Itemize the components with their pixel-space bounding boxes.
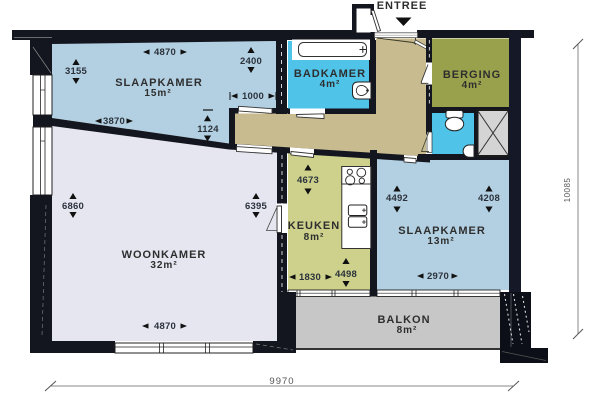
svg-text:4870: 4870 (154, 321, 176, 332)
svg-text:8m²: 8m² (397, 325, 418, 336)
svg-text:4208: 4208 (478, 193, 500, 204)
svg-text:6860: 6860 (62, 201, 84, 212)
svg-text:1830: 1830 (299, 272, 321, 283)
svg-text:15m²: 15m² (144, 88, 171, 99)
svg-text:1124: 1124 (197, 124, 219, 135)
svg-text:3155: 3155 (65, 66, 87, 77)
svg-text:3870: 3870 (103, 116, 125, 127)
svg-text:32m²: 32m² (150, 260, 177, 271)
svg-text:4870: 4870 (154, 47, 176, 58)
svg-text:2400: 2400 (240, 56, 262, 67)
svg-text:4m²: 4m² (320, 79, 341, 90)
svg-text:1000: 1000 (242, 91, 264, 102)
svg-text:KEUKEN: KEUKEN (288, 220, 340, 232)
svg-text:6395: 6395 (245, 201, 267, 212)
svg-text:9970: 9970 (269, 376, 294, 387)
svg-text:4492: 4492 (386, 193, 408, 204)
svg-text:4m²: 4m² (462, 80, 483, 91)
svg-text:4673: 4673 (297, 175, 319, 186)
svg-text:2970: 2970 (427, 271, 449, 282)
svg-text:10085: 10085 (563, 178, 572, 203)
svg-text:8m²: 8m² (304, 232, 325, 243)
svg-text:13m²: 13m² (427, 236, 454, 247)
svg-text:4498: 4498 (335, 269, 357, 280)
svg-text:ENTREE: ENTREE (377, 0, 428, 12)
